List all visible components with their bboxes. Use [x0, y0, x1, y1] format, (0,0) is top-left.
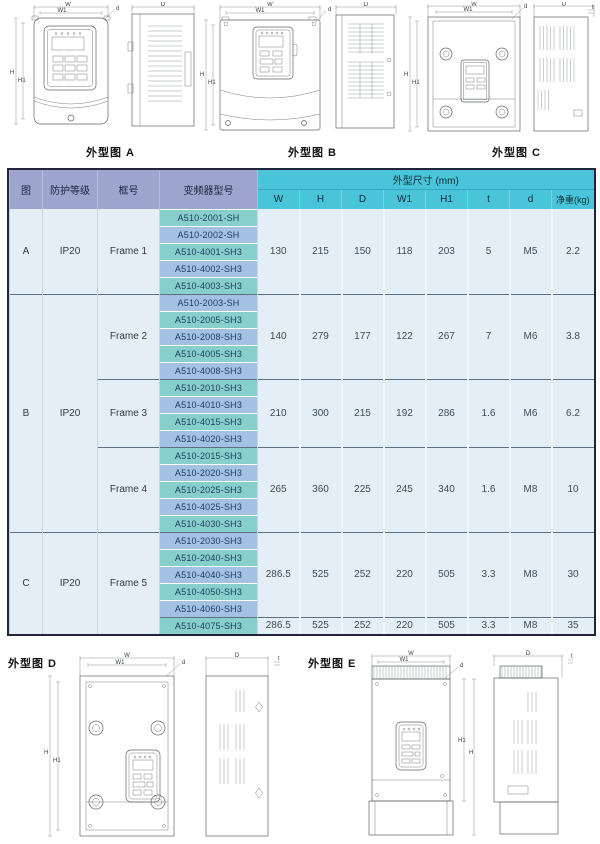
- dim-cell: 2.2: [552, 209, 594, 294]
- dim-label-h1: H1: [18, 78, 26, 84]
- dim-label-h: H: [10, 70, 14, 76]
- dim-label-depth: D: [562, 2, 567, 8]
- drawing-a-caption: 外型图 A: [86, 144, 135, 160]
- frame-cell: Frame 3: [98, 379, 160, 447]
- dim-cell: 279: [300, 294, 342, 379]
- heatsink-vents: [148, 26, 182, 101]
- model-cell: A510-4050-SH3: [160, 583, 258, 600]
- model-cell: A510-4020-SH3: [160, 430, 258, 447]
- dim-cell: 220: [384, 532, 426, 617]
- dim-label-h: H: [44, 750, 48, 756]
- dim-cell: 286: [426, 379, 468, 447]
- dim-label-d: d: [182, 660, 185, 666]
- frame-cell: Frame 2: [98, 294, 160, 379]
- model-cell: A510-2003-SH: [160, 294, 258, 311]
- dim-label-h: H: [469, 750, 473, 756]
- dim-cell: 6.2: [552, 379, 594, 447]
- dim-label-w: W: [124, 653, 130, 659]
- model-cell: A510-4003-SH3: [160, 277, 258, 294]
- vent-slots: [528, 692, 536, 712]
- keypad: [44, 26, 96, 90]
- table-row: A IP20 Frame 1 A510-2001-SH 130 215 150 …: [10, 209, 594, 226]
- dim-label-w1: W1: [116, 660, 126, 666]
- dim-label-depth: D: [526, 651, 531, 657]
- dim-label-d: d: [328, 7, 331, 13]
- protection-cell: IP20: [43, 209, 98, 294]
- model-cell: A510-4025-SH3: [160, 498, 258, 515]
- dim-label-t: t: [278, 656, 280, 662]
- dim-cell: 3.8: [552, 294, 594, 379]
- figure-cell: B: [10, 294, 43, 532]
- heatsink-fins: [500, 666, 542, 678]
- pedestal: [369, 801, 453, 835]
- frame-cell: Frame 5: [98, 532, 160, 634]
- table-row: Frame 4 A510-2015-SH3 265 360 225 245 34…: [10, 447, 594, 464]
- model-cell: A510-4002-SH3: [160, 260, 258, 277]
- dim-label-w1: W1: [464, 7, 474, 13]
- outline-drawing-e: W W1 d H1 H D: [332, 650, 596, 842]
- col-header-weight: 净重(kg): [552, 189, 594, 209]
- dim-cell: 35: [552, 617, 594, 634]
- dim-label-t: t: [571, 654, 573, 660]
- dim-label-w: W: [267, 2, 273, 8]
- keypad-display: [52, 37, 84, 50]
- table-row: B IP20 Frame 2 A510-2003-SH 140 279 177 …: [10, 294, 594, 311]
- outline-drawing-a: W W1 H H1 d D: [4, 2, 198, 142]
- drawing-c-side-view: D t: [534, 2, 594, 131]
- dim-label-h1: H1: [412, 80, 420, 86]
- dim-label-h1: H1: [458, 738, 466, 744]
- dim-cell: 286.5: [258, 617, 300, 634]
- dim-cell: 360: [300, 447, 342, 532]
- dim-cell: 30: [552, 532, 594, 617]
- dim-label-h1: H1: [208, 80, 216, 86]
- frame-cell: Frame 1: [98, 209, 160, 294]
- drawing-d-front-view: W W1 d H H1: [44, 653, 185, 836]
- vent-slots-lower: [348, 62, 384, 98]
- dim-cell: 192: [384, 379, 426, 447]
- heatsink-fins: [372, 666, 450, 679]
- protection-cell: IP20: [43, 294, 98, 532]
- col-header-dimensions: 外型尺寸 (mm): [258, 170, 594, 189]
- outline-drawing-c: W W1 H H1 d D: [402, 2, 598, 144]
- dim-cell: 505: [426, 617, 468, 634]
- figure-cell: C: [10, 532, 43, 634]
- frame-cell: Frame 4: [98, 447, 160, 532]
- dimensions-table: 图 防护等级 框号 变频器型号 外型尺寸 (mm) W H D W1 H1 t …: [9, 170, 594, 634]
- outline-drawing-d: W W1 d H H1 D: [28, 650, 296, 842]
- dim-label-d: d: [460, 663, 463, 669]
- dim-label-w: W: [408, 651, 414, 657]
- col-header-frame: 框号: [98, 170, 160, 209]
- col-header-t: t: [468, 189, 510, 209]
- model-cell: A510-2005-SH3: [160, 311, 258, 328]
- dim-cell: 286.5: [258, 532, 300, 617]
- dim-cell: 118: [384, 209, 426, 294]
- dim-label-w1: W1: [400, 657, 410, 663]
- dim-cell: 203: [426, 209, 468, 294]
- table-row: Frame 3 A510-2010-SH3 210 300 215 192 28…: [10, 379, 594, 396]
- model-cell: A510-2001-SH: [160, 209, 258, 226]
- dim-label-h: H: [200, 72, 204, 78]
- dim-cell: 525: [300, 532, 342, 617]
- drawing-b-caption: 外型图 B: [288, 144, 337, 160]
- dim-cell: 1.6: [468, 379, 510, 447]
- dim-cell: 150: [342, 209, 384, 294]
- outline-drawing-b: W W1 H H1 d D: [198, 2, 402, 142]
- vent-slots: [236, 690, 244, 712]
- model-cell: A510-2008-SH3: [160, 328, 258, 345]
- drawing-e-front-view: W W1 d H1 H: [369, 651, 476, 835]
- drawing-e-side-view: D t: [494, 651, 573, 834]
- dim-cell: 267: [426, 294, 468, 379]
- table-row: C IP20 Frame 5 A510-2030-SH3 286.5 525 2…: [10, 532, 594, 549]
- dim-cell: 3.3: [468, 617, 510, 634]
- drawing-b-front-view: W W1 H H1 d: [200, 2, 331, 130]
- dim-label-depth: D: [364, 2, 369, 8]
- model-cell: A510-4015-SH3: [160, 413, 258, 430]
- model-cell: A510-4005-SH3: [160, 345, 258, 362]
- dim-cell: 225: [342, 447, 384, 532]
- drawing-b-side-view: D: [336, 2, 396, 128]
- keypad: [396, 722, 426, 770]
- model-cell: A510-2030-SH3: [160, 532, 258, 549]
- dim-cell: 215: [342, 379, 384, 447]
- dim-cell: M8: [510, 532, 552, 617]
- vent-slots: [540, 26, 554, 50]
- dim-label-h: H: [404, 72, 408, 78]
- model-cell: A510-4030-SH3: [160, 515, 258, 532]
- drawing-c-front-view: W W1 H H1 d: [404, 2, 527, 131]
- drawing-d-side-view: D t: [206, 653, 280, 836]
- keypad-display: [133, 760, 153, 770]
- col-header-model: 变频器型号: [160, 170, 258, 209]
- col-header-h1: H1: [426, 189, 468, 209]
- col-header-d: D: [342, 189, 384, 209]
- dim-cell: 177: [342, 294, 384, 379]
- protection-cell: IP20: [43, 532, 98, 634]
- model-cell: A510-4008-SH3: [160, 362, 258, 379]
- screw: [68, 115, 74, 121]
- dim-cell: 5: [468, 209, 510, 294]
- dim-cell: 210: [258, 379, 300, 447]
- model-cell: A510-4075-SH3: [160, 617, 258, 634]
- dim-cell: M5: [510, 209, 552, 294]
- manual-page: W W1 H H1 d D: [0, 0, 600, 844]
- dim-cell: 505: [426, 532, 468, 617]
- keypad-display: [259, 36, 283, 47]
- dim-label-d: d: [524, 4, 527, 10]
- dim-label-d: d: [116, 6, 119, 12]
- model-cell: A510-2025-SH3: [160, 481, 258, 498]
- dim-cell: M6: [510, 379, 552, 447]
- dim-cell: 220: [384, 617, 426, 634]
- keypad-display: [466, 66, 484, 74]
- drawing-c-caption: 外型图 C: [492, 144, 541, 160]
- model-cell: A510-2020-SH3: [160, 464, 258, 481]
- keypad: [126, 750, 160, 802]
- dim-label-depth: D: [161, 2, 166, 8]
- col-header-h: H: [300, 189, 342, 209]
- col-header-w: W: [258, 189, 300, 209]
- model-cell: A510-2015-SH3: [160, 447, 258, 464]
- model-cell: A510-4010-SH3: [160, 396, 258, 413]
- dim-cell: 130: [258, 209, 300, 294]
- col-header-figure: 图: [10, 170, 43, 209]
- dim-cell: 122: [384, 294, 426, 379]
- dim-cell: 1.6: [468, 447, 510, 532]
- dim-cell: M8: [510, 447, 552, 532]
- figure-cell: A: [10, 209, 43, 294]
- drawing-a-side-view: D: [128, 2, 194, 126]
- dim-label-depth: D: [235, 653, 240, 659]
- col-header-screw: d: [510, 189, 552, 209]
- dim-cell: 245: [384, 447, 426, 532]
- drawing-a-front-view: W W1 H H1 d: [10, 2, 119, 124]
- dim-cell: 215: [300, 209, 342, 294]
- dim-cell: 300: [300, 379, 342, 447]
- dim-cell: M8: [510, 617, 552, 634]
- dim-cell: 252: [342, 532, 384, 617]
- dim-cell: 252: [342, 617, 384, 634]
- model-cell: A510-2010-SH3: [160, 379, 258, 396]
- model-cell: A510-2002-SH: [160, 226, 258, 243]
- model-cell: A510-4040-SH3: [160, 566, 258, 583]
- vent-slots-upper: [348, 24, 384, 54]
- dim-cell: 340: [426, 447, 468, 532]
- col-header-w1: W1: [384, 189, 426, 209]
- dim-cell: 140: [258, 294, 300, 379]
- dim-cell: 10: [552, 447, 594, 532]
- dim-cell: 265: [258, 447, 300, 532]
- dim-label-w1: W1: [256, 8, 266, 14]
- model-cell: A510-2040-SH3: [160, 549, 258, 566]
- model-cell: A510-4060-SH3: [160, 600, 258, 617]
- dim-cell: M6: [510, 294, 552, 379]
- dim-label-h1: H1: [53, 758, 61, 764]
- col-header-protection: 防护等级: [43, 170, 98, 209]
- dim-cell: 7: [468, 294, 510, 379]
- dimensions-table-container: 图 防护等级 框号 变频器型号 外型尺寸 (mm) W H D W1 H1 t …: [7, 168, 596, 636]
- dim-cell: 525: [300, 617, 342, 634]
- model-cell: A510-4001-SH3: [160, 243, 258, 260]
- dim-cell: 3.3: [468, 532, 510, 617]
- dim-label-w1: W1: [58, 8, 68, 14]
- keypad-display: [402, 732, 420, 741]
